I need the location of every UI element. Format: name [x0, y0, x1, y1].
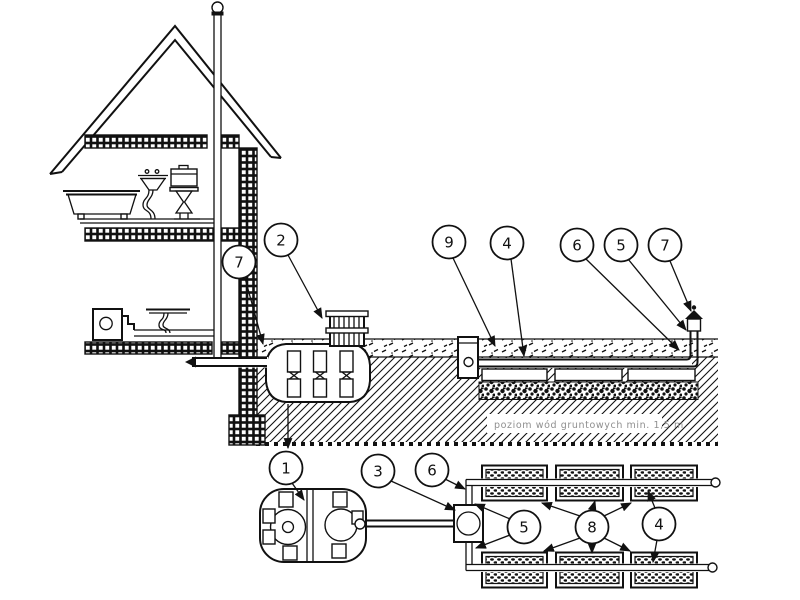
callout-lateral-pipes-plan: 5 [508, 511, 541, 544]
upper-floor-drain-pipe [80, 219, 214, 223]
upper-floor-slab-right [222, 228, 239, 241]
septic-system-diagram: poziom wód gruntowych min. 1,5 m [0, 0, 800, 600]
svg-text:6: 6 [572, 237, 582, 255]
roof-vent-cap-icon [212, 2, 224, 16]
callout-trench-right-plan: 4 [643, 508, 676, 541]
svg-text:8: 8 [587, 519, 597, 537]
callout-drain-trenches-plan: 8 [576, 511, 609, 544]
upper-floor-slab [85, 228, 213, 241]
callout-pipe-elbow-section: 6 [561, 229, 594, 262]
svg-text:6: 6 [427, 462, 437, 480]
callout-septic-tank: 1 [270, 452, 303, 485]
filter-box-1 [482, 369, 547, 381]
ground-floor-slab-right [222, 342, 239, 354]
gravel-layer [479, 382, 698, 400]
septic-tank-section [266, 311, 370, 402]
house-sewer-pipe [185, 357, 268, 368]
groundwater-text: poziom wód gruntowych min. 1,5 m [494, 420, 684, 431]
callout-tank-riser: 2 [265, 224, 298, 257]
distribution-well-section [458, 337, 478, 378]
callout-distribution-box-plan: 3 [362, 455, 395, 488]
svg-text:4: 4 [502, 235, 512, 253]
washing-machine [93, 309, 134, 340]
callout-drain-pipe-section: 4 [491, 227, 524, 260]
wall-footing [229, 415, 265, 445]
svg-text:7: 7 [660, 237, 670, 255]
callout-vent-riser-section: 5 [605, 229, 638, 262]
vent-stack [212, 2, 224, 360]
svg-text:4: 4 [654, 516, 664, 534]
toilet [170, 166, 200, 220]
callout-distribution-well: 9 [433, 226, 466, 259]
groundwater-label: poziom wód gruntowych min. 1,5 m [487, 414, 684, 433]
ground-floor-drain-pipe [134, 330, 214, 336]
callout-vent-cap-section: 7 [649, 229, 682, 262]
washbasin [138, 170, 168, 219]
svg-text:1: 1 [281, 460, 291, 478]
field-vent-cap [685, 305, 703, 331]
diagram-page: poziom wód gruntowych min. 1,5 m [0, 0, 800, 600]
tank-outlet-pipe [366, 521, 455, 527]
svg-text:5: 5 [519, 519, 529, 537]
bathtub [63, 191, 140, 219]
callout-vent-stack-house: 7 [223, 246, 256, 279]
tank-riser-turret [326, 311, 368, 346]
attic-ceiling-left [85, 135, 207, 148]
svg-text:2: 2 [276, 232, 286, 250]
filter-box-2 [555, 369, 622, 381]
attic-ceiling-right [222, 135, 239, 148]
distribution-box-plan [454, 505, 483, 542]
filter-box-3 [628, 369, 695, 381]
svg-text:5: 5 [616, 237, 626, 255]
house-section [50, 26, 281, 445]
ground-floor-slab [85, 342, 212, 354]
svg-text:3: 3 [373, 463, 383, 481]
exterior-wall [239, 148, 257, 415]
svg-text:9: 9 [444, 234, 454, 252]
septic-tank-plan [260, 489, 366, 562]
callout-manifold-pipe-plan: 6 [416, 454, 449, 487]
svg-text:7: 7 [234, 254, 244, 272]
